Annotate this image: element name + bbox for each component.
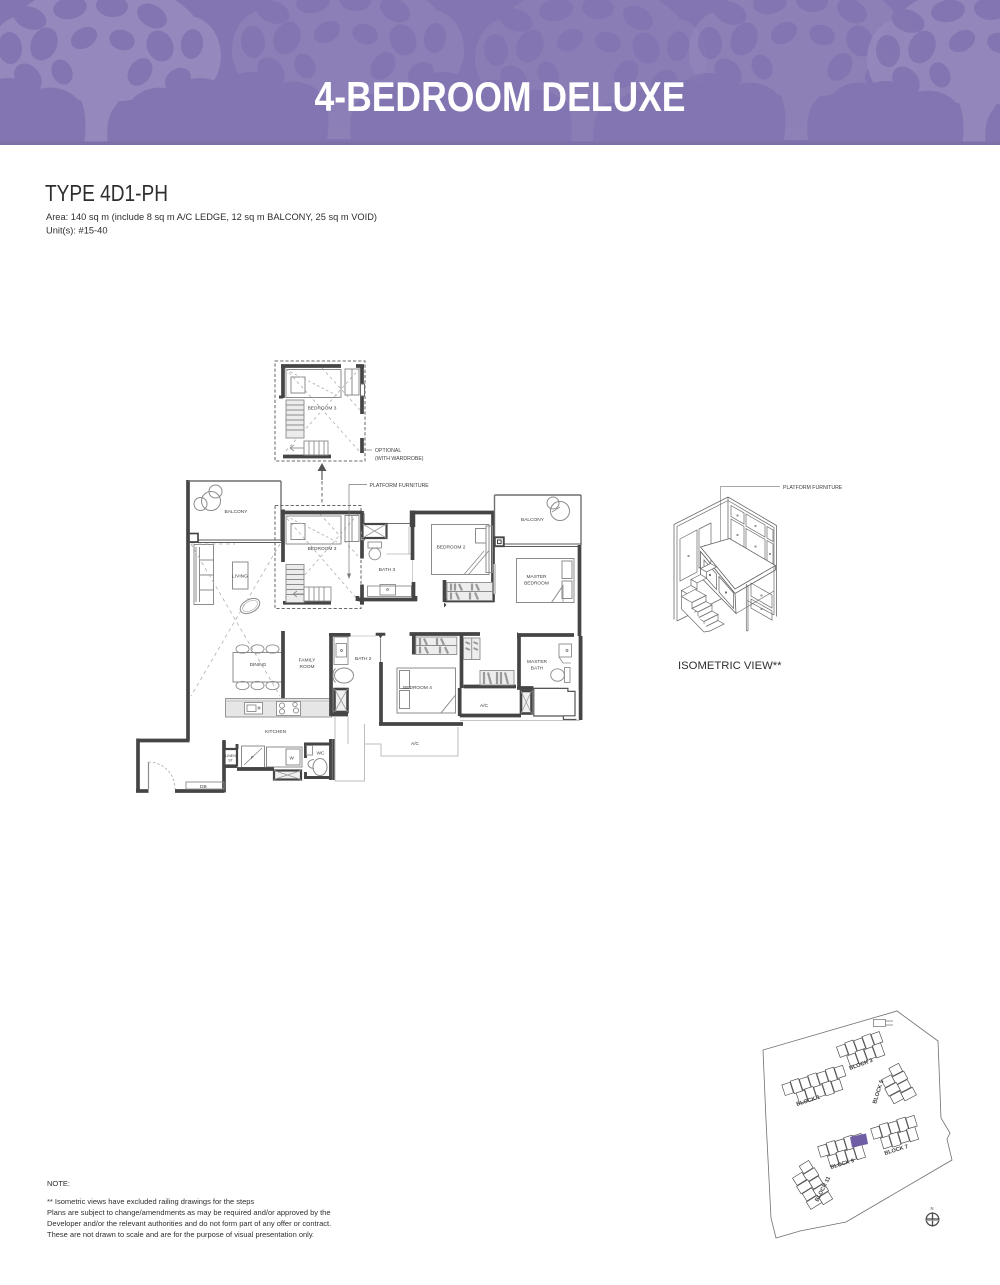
svg-text:MASTER: MASTER <box>527 574 548 580</box>
svg-text:(WITH WARDROBE): (WITH WARDROBE) <box>375 456 424 462</box>
svg-text:BATH: BATH <box>531 666 544 672</box>
svg-text:F: F <box>251 755 254 760</box>
svg-text:TYPE 4D1-PH: TYPE 4D1-PH <box>45 180 168 206</box>
svg-text:ST: ST <box>228 759 233 763</box>
svg-text:BATH 2: BATH 2 <box>355 656 372 662</box>
svg-text:WC: WC <box>317 751 326 757</box>
svg-text:W: W <box>290 756 295 761</box>
svg-text:Unit(s): #15-40: Unit(s): #15-40 <box>46 226 108 236</box>
svg-text:LINEN: LINEN <box>225 754 236 758</box>
svg-text:A/C: A/C <box>411 741 420 747</box>
svg-text:MASTER: MASTER <box>527 659 548 665</box>
svg-text:FAMILY: FAMILY <box>299 658 317 664</box>
svg-text:BEDROOM 4: BEDROOM 4 <box>403 685 432 691</box>
svg-text:Plans are subject to change/am: Plans are subject to change/amendments a… <box>47 1208 331 1217</box>
svg-text:ISOMETRIC VIEW**: ISOMETRIC VIEW** <box>678 660 782 672</box>
svg-text:NOTE:: NOTE: <box>47 1179 70 1188</box>
svg-text:N: N <box>931 1206 934 1211</box>
svg-text:OPTIONAL: OPTIONAL <box>375 448 401 454</box>
svg-text:DB: DB <box>200 784 207 790</box>
svg-text:DINING: DINING <box>250 662 267 668</box>
svg-text:KITCHEN: KITCHEN <box>265 729 287 735</box>
svg-text:Area: 140 sq m (include 8 sq m: Area: 140 sq m (include 8 sq m A/C LEDGE… <box>46 212 377 222</box>
svg-text:BATH 3: BATH 3 <box>379 567 396 573</box>
svg-text:BALCONY: BALCONY <box>521 517 545 523</box>
svg-text:** Isometric views have exclud: ** Isometric views have excluded railing… <box>47 1197 254 1206</box>
svg-text:LIVING: LIVING <box>232 574 248 580</box>
svg-text:BEDROOM 2: BEDROOM 2 <box>437 545 466 551</box>
svg-text:These are not drawn to scale a: These are not drawn to scale and are for… <box>47 1230 314 1239</box>
svg-text:ROOM: ROOM <box>300 664 315 670</box>
svg-text:PLATFORM FURNITURE: PLATFORM FURNITURE <box>783 485 843 491</box>
svg-text:BEDROOM 3: BEDROOM 3 <box>308 406 337 412</box>
svg-text:A/C: A/C <box>480 703 489 709</box>
svg-text:Developer and/or the relevant: Developer and/or the relevant authoritie… <box>47 1219 331 1228</box>
svg-text:4-BEDROOM DELUXE: 4-BEDROOM DELUXE <box>315 73 686 120</box>
svg-text:BEDROOM: BEDROOM <box>524 581 549 587</box>
svg-text:BEDROOM 3: BEDROOM 3 <box>308 546 337 552</box>
svg-text:BALCONY: BALCONY <box>225 509 249 515</box>
svg-text:PLATFORM FURNITURE: PLATFORM FURNITURE <box>370 483 430 489</box>
